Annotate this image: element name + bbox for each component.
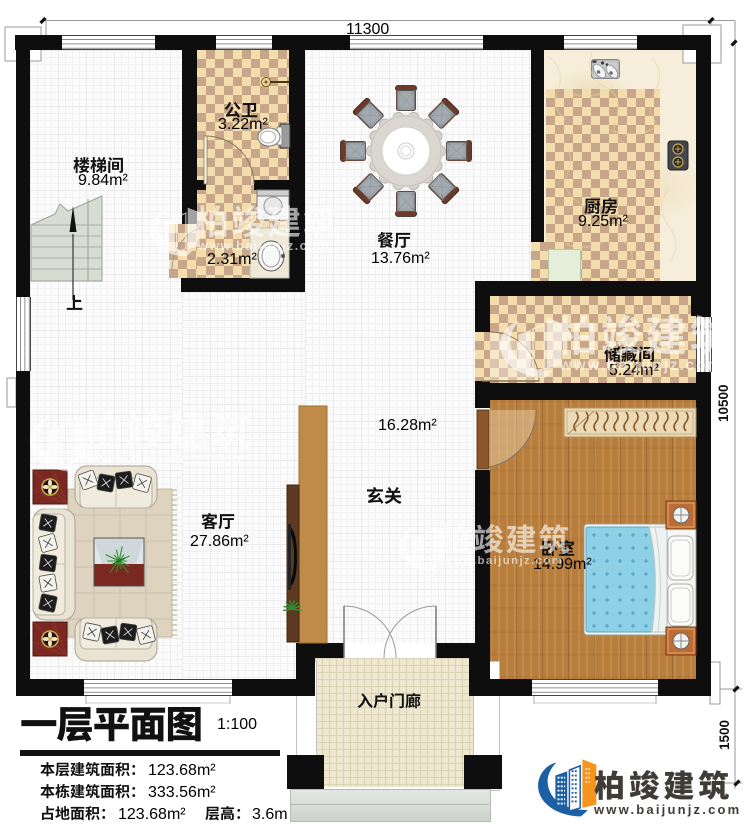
svg-text:10500: 10500 xyxy=(716,384,731,422)
svg-text:1500: 1500 xyxy=(717,720,732,750)
